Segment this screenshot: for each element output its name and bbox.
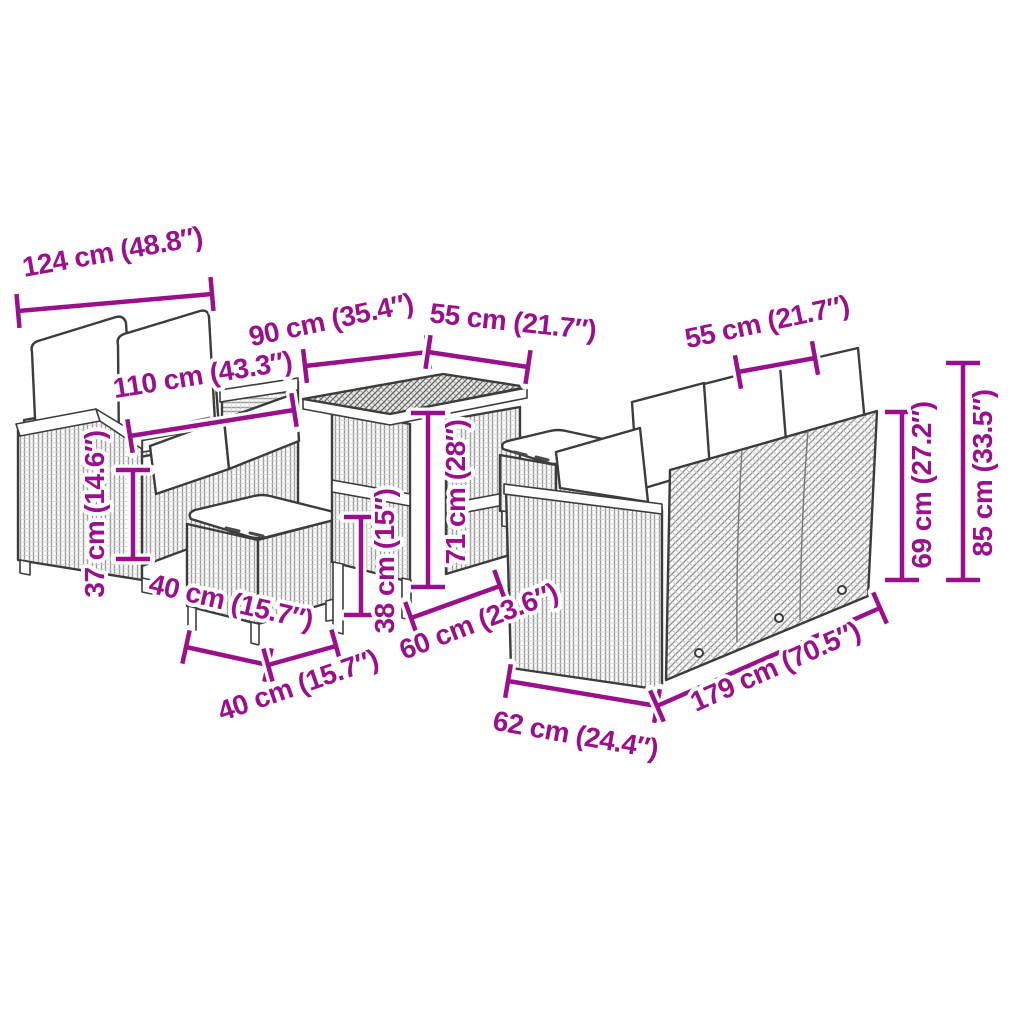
furniture-dimension-diagram: 124 cm (48.8″)110 cm (43.3″)90 cm (35.4″…	[0, 0, 1024, 1024]
dimension-label: 55 cm (21.7″)	[428, 297, 598, 345]
right-sofa-foot-2	[775, 614, 783, 622]
dimension-label: 69 cm (27.2″)	[906, 401, 937, 568]
dimension-label: 90 cm (35.4″)	[246, 287, 416, 352]
right-sofa-foot-1	[695, 649, 703, 657]
dimension-left-sofa-back-width: 124 cm (48.8″)	[17, 221, 214, 328]
dimension-label: 124 cm (48.8″)	[20, 221, 205, 283]
dimension-label: 55 cm (21.7″)	[682, 289, 852, 354]
dimension-right-sofa-total-height: 85 cm (33.5″)	[946, 363, 998, 580]
dimension-label: 37 cm (14.6″)	[79, 430, 110, 597]
diagram-stage: 124 cm (48.8″)110 cm (43.3″)90 cm (35.4″…	[0, 0, 1024, 1024]
dimension-label: 85 cm (33.5″)	[967, 389, 998, 556]
dimension-label: 62 cm (24.4″)	[491, 705, 661, 765]
dimension-label: 38 cm (15″)	[369, 489, 400, 634]
left-sofa-foot-2	[20, 560, 30, 575]
right-sofa-foot-3	[838, 586, 846, 594]
stool-1-leg-2	[251, 622, 259, 645]
dimension-table-height: 71 cm (28″)	[411, 413, 471, 587]
dimension-stool-width: 40 cm (15.7″)	[214, 630, 382, 727]
dimension-right-sofa-back-height: 69 cm (27.2″)	[885, 401, 937, 580]
dimension-label: 71 cm (28″)	[440, 420, 471, 565]
table-leg-1	[333, 562, 343, 634]
dimension-table-width: 55 cm (21.7″)	[425, 297, 597, 383]
